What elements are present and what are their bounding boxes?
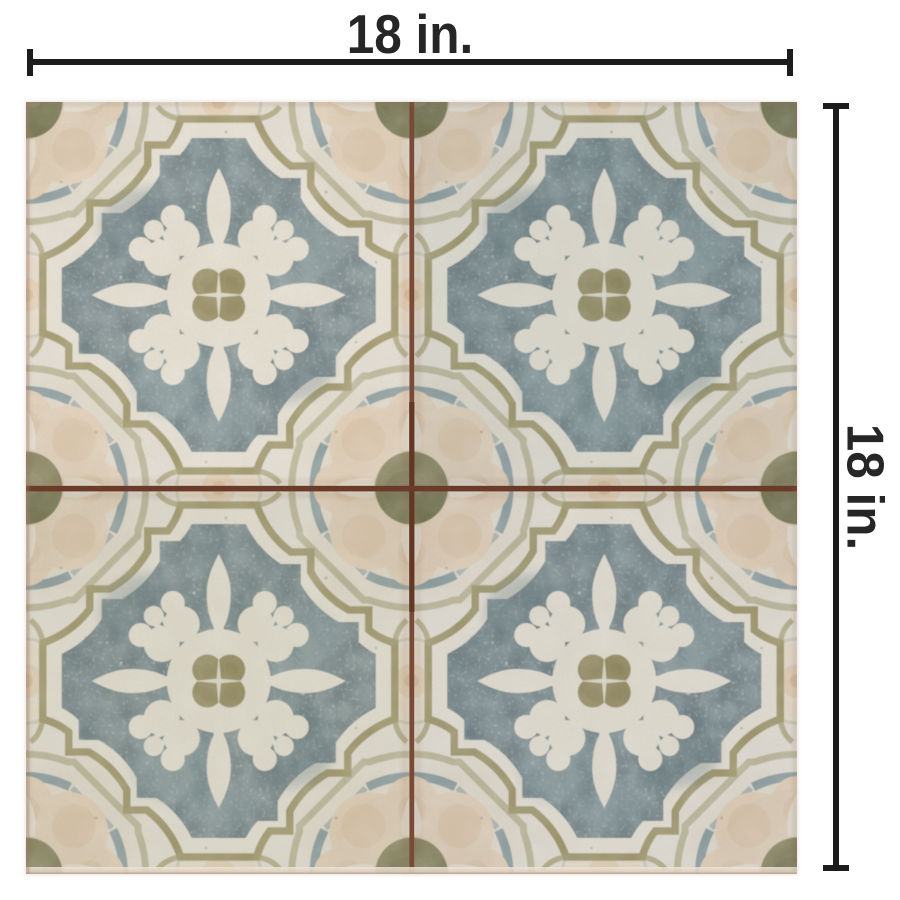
svg-text:18 in.: 18 in. [836, 424, 895, 551]
svg-text:18 in.: 18 in. [347, 5, 474, 66]
